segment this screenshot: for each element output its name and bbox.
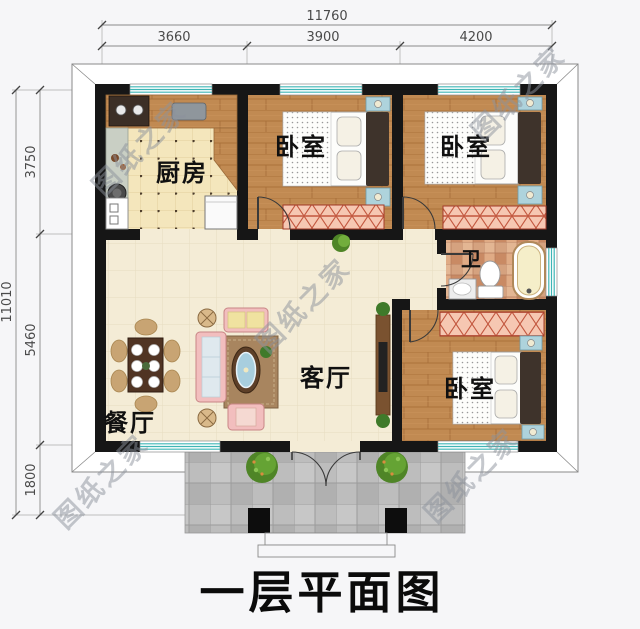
kitchen-window xyxy=(130,84,212,95)
headboard-icon xyxy=(366,112,389,186)
floor-plan-page: 11760 3660 3900 4200 11010 3750 5460 180… xyxy=(0,0,640,629)
pillow-icon xyxy=(495,390,517,418)
entry-threshold xyxy=(290,441,360,452)
porch-shrub xyxy=(246,451,278,483)
tv-cabinet xyxy=(376,302,390,428)
wardrobe-icon xyxy=(283,205,384,229)
headboard-icon xyxy=(518,112,541,184)
dim-left-seg-2: 5460 xyxy=(24,323,39,356)
living-room-label: 客厅 xyxy=(300,364,352,392)
plant-icon xyxy=(376,414,390,428)
bedroom1-window xyxy=(280,84,362,95)
porch-column xyxy=(385,508,407,533)
pillow-icon xyxy=(337,117,361,146)
end-table-icon xyxy=(198,309,216,327)
bedroom1-furniture xyxy=(283,97,390,229)
bedroom3-label: 卧室 xyxy=(444,375,496,403)
wardrobe-icon xyxy=(440,312,544,336)
floor-plan-svg: 11760 3660 3900 4200 11010 3750 5460 180… xyxy=(0,0,640,629)
tv-icon xyxy=(379,342,388,392)
toilet-icon xyxy=(480,261,500,287)
pillow-icon xyxy=(495,356,517,384)
entry-step xyxy=(265,533,387,545)
bathroom-label: 卫 xyxy=(461,247,481,271)
entry-step xyxy=(258,545,395,557)
dim-left-seg-3: 1800 xyxy=(24,463,39,496)
headboard-icon xyxy=(520,352,541,424)
page-title: 一层平面图 xyxy=(199,566,444,619)
hall-plant xyxy=(332,234,350,252)
porch-shrub xyxy=(376,451,408,483)
bedroom1-label: 卧室 xyxy=(275,133,327,161)
bathroom-window xyxy=(546,248,557,296)
kitchen-label: 厨房 xyxy=(156,159,208,187)
dim-top-seg-1: 3660 xyxy=(157,30,190,45)
dim-top-seg-3: 4200 xyxy=(459,30,492,45)
end-table-icon xyxy=(198,409,216,427)
dim-top-seg-2: 3900 xyxy=(306,30,339,45)
fridge-icon xyxy=(205,196,237,229)
porch-column xyxy=(248,508,270,533)
wardrobe-icon xyxy=(443,206,546,229)
plant-icon xyxy=(376,302,390,316)
dim-left-seg-1: 3750 xyxy=(24,145,39,178)
pillow-icon xyxy=(337,151,361,180)
dim-top-total: 11760 xyxy=(306,9,347,24)
dim-left-total: 11010 xyxy=(0,281,15,322)
